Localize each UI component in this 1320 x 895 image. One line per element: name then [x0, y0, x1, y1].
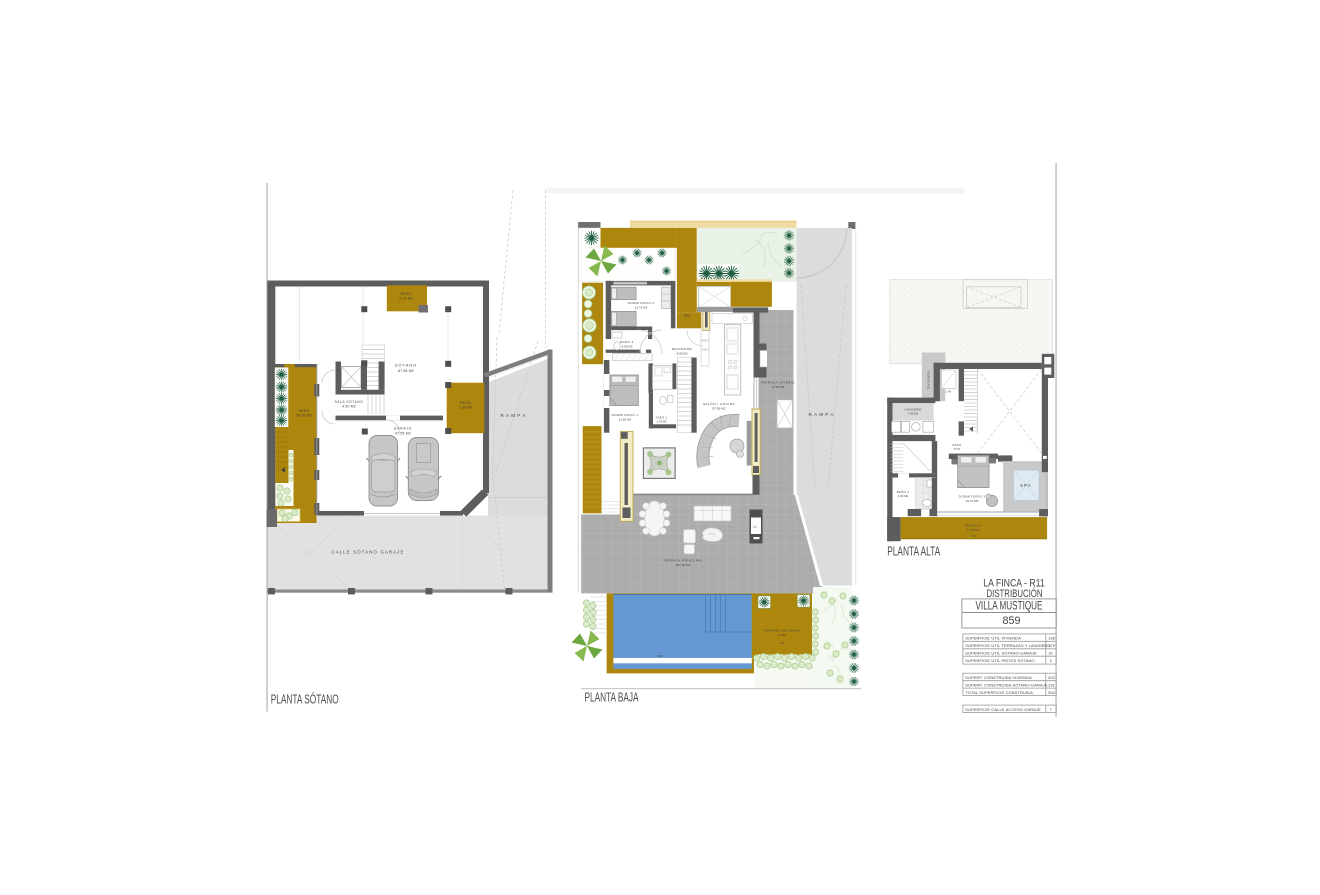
svg-text:17.75 M2: 17.75 M2	[967, 528, 980, 532]
svg-text:8.00: 8.00	[657, 654, 663, 658]
svg-text:PATIO: PATIO	[401, 292, 412, 296]
svg-text:8.75: 8.75	[954, 447, 960, 451]
svg-text:1.50: 1.50	[779, 641, 785, 645]
svg-text:BAÑO 2: BAÑO 2	[620, 339, 633, 344]
svg-text:67.55 M2: 67.55 M2	[398, 369, 414, 373]
svg-text:21.70 M2: 21.70 M2	[966, 499, 979, 503]
svg-text:TOTAL SUPERFICIE CONSTRUIDA: TOTAL SUPERFICIE CONSTRUIDA	[965, 690, 1033, 695]
svg-text:/1P2: /1P2	[684, 314, 691, 318]
svg-text:TERRAZA: TERRAZA	[964, 524, 982, 528]
svg-text:TERRAZA LATERAL: TERRAZA LATERAL	[760, 381, 795, 385]
svg-text:DORMITORIO 1: DORMITORIO 1	[612, 413, 639, 417]
svg-text:1.75 M2: 1.75 M2	[656, 420, 667, 424]
svg-text:7.50: 7.50	[970, 534, 976, 538]
svg-text:PATIO: PATIO	[299, 409, 310, 413]
svg-text:30.50 M2: 30.50 M2	[296, 414, 312, 418]
svg-text:SPA: SPA	[1020, 483, 1032, 488]
svg-text:12.75 M2: 12.75 M2	[635, 306, 648, 310]
svg-text:SUPERFICIE ÚTIL PATIOS SÓTANO: SUPERFICIE ÚTIL PATIOS SÓTANO	[965, 658, 1034, 663]
svg-text:859: 859	[1003, 615, 1021, 627]
svg-text:3.70 M2: 3.70 M2	[399, 297, 413, 301]
svg-text:DORMITORIO 3: DORMITORIO 3	[959, 495, 986, 499]
svg-text:SÓTANO: SÓTANO	[395, 363, 418, 368]
svg-text:SUPERF. CONSTRUIDA VIVIENDA: SUPERF. CONSTRUIDA VIVIENDA	[965, 675, 1032, 680]
svg-text:SALÓN / COCINA: SALÓN / COCINA	[703, 401, 736, 406]
svg-text:8.50 M2: 8.50 M2	[677, 352, 688, 356]
svg-text:GARAJE: GARAJE	[394, 427, 412, 431]
svg-text:11.35 M2: 11.35 M2	[772, 385, 785, 389]
svg-text:RAMPA: RAMPA	[501, 413, 528, 418]
svg-text:RECIBIDOR: RECIBIDOR	[672, 347, 693, 351]
svg-text:SUPERFICIE ÚTIL TERRAZAS Y LAV: SUPERFICIE ÚTIL TERRAZAS Y LAVADERO	[965, 643, 1050, 648]
svg-text:SUPERFICIE ÚTIL SÓTANO-GARAJE: SUPERFICIE ÚTIL SÓTANO-GARAJE	[965, 651, 1037, 656]
svg-text:7.95 M2: 7.95 M2	[908, 412, 919, 416]
svg-text:191: 191	[1048, 682, 1056, 687]
svg-text:4.50 M2: 4.50 M2	[342, 405, 356, 409]
svg-text:179: 179	[1048, 643, 1056, 648]
svg-text:138: 138	[1048, 636, 1056, 641]
svg-text:CALLE SÓTANO GARAJE: CALLE SÓTANO GARAJE	[331, 550, 404, 555]
svg-text:PLANTA SÓTANO: PLANTA SÓTANO	[271, 692, 339, 707]
svg-text:PLANTA ALTA: PLANTA ALTA	[887, 545, 940, 559]
svg-text:TENDEDERO: TENDEDERO	[927, 371, 931, 390]
svg-text:TERRAZA PRINCIPAL: TERRAZA PRINCIPAL	[663, 559, 703, 563]
svg-text:11 M2: 11 M2	[778, 633, 786, 637]
svg-text:PLANTA BAJA: PLANTA BAJA	[585, 691, 639, 705]
svg-text:101.90 M2: 101.90 M2	[676, 563, 691, 567]
svg-text:57.95 M2: 57.95 M2	[713, 407, 726, 411]
svg-text:202: 202	[1048, 675, 1056, 680]
svg-text:394: 394	[1048, 690, 1056, 695]
svg-text:RAMPA: RAMPA	[809, 412, 836, 417]
svg-text:11.60 M2: 11.60 M2	[619, 418, 632, 422]
svg-text:SUPERF. CONSTRUIDA SÓTANO-GARA: SUPERF. CONSTRUIDA SÓTANO-GARAJE	[965, 682, 1048, 687]
svg-text:TERRAZA SOLÁRIUM: TERRAZA SOLÁRIUM	[764, 629, 801, 633]
svg-text:4.90 M2: 4.90 M2	[898, 494, 909, 498]
svg-text:VILLA MUSTIQUE: VILLA MUSTIQUE	[976, 601, 1043, 613]
svg-text:4.95 M2: 4.95 M2	[622, 345, 633, 349]
svg-text:16: 16	[1048, 651, 1053, 656]
svg-text:1.40: 1.40	[946, 390, 952, 394]
svg-text:SUPERFICIE ÚTIL VIVIENDA: SUPERFICIE ÚTIL VIVIENDA	[965, 636, 1021, 641]
svg-text:DISTRIBUCIÓN: DISTRIBUCIÓN	[987, 587, 1043, 600]
svg-text:SALA SÓTANO: SALA SÓTANO	[335, 399, 364, 404]
svg-text:SUPERFICIE CALLE ACCESO GARAJE: SUPERFICIE CALLE ACCESO GARAJE	[965, 707, 1041, 712]
svg-text:PATIO: PATIO	[460, 401, 471, 405]
svg-text:DORMITORIO 2: DORMITORIO 2	[628, 301, 655, 305]
svg-text:47.55 M2: 47.55 M2	[395, 432, 411, 436]
svg-text:7.30 M2: 7.30 M2	[459, 406, 473, 410]
